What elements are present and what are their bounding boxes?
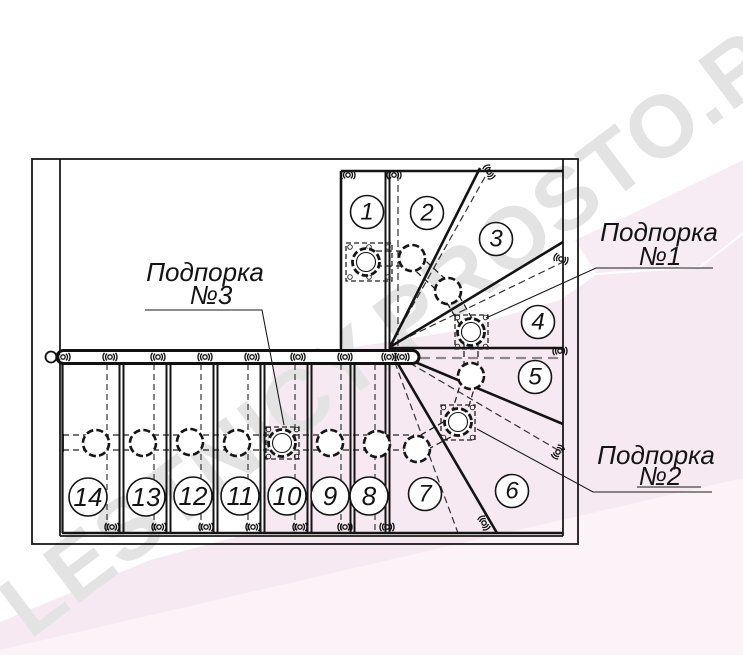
step-number-10: 10 xyxy=(273,481,302,511)
baluster-post xyxy=(458,363,484,389)
bolt-hole xyxy=(348,275,353,280)
support-2-number: №2 xyxy=(639,461,682,491)
baluster-post xyxy=(177,429,203,455)
bolt-hole xyxy=(348,245,353,250)
baluster-post xyxy=(130,430,156,456)
baluster-post xyxy=(435,278,461,304)
step-number-12: 12 xyxy=(179,481,208,511)
baluster-post xyxy=(404,436,430,462)
step-number-1: 1 xyxy=(360,199,373,226)
step-number-6: 6 xyxy=(505,478,519,505)
support-3-number: №3 xyxy=(190,280,233,310)
handrail-bar xyxy=(57,351,419,364)
step-number-9: 9 xyxy=(323,481,337,511)
handrail-end-newel xyxy=(46,352,57,363)
baluster-post xyxy=(83,430,109,456)
step-number-5: 5 xyxy=(528,364,542,391)
baluster-post xyxy=(364,431,390,457)
step-number-14: 14 xyxy=(74,482,103,512)
baluster-post xyxy=(317,430,343,456)
baluster-post xyxy=(399,245,425,271)
handrail-capsule xyxy=(46,351,420,364)
support-1-number: №1 xyxy=(639,241,682,271)
baluster-post xyxy=(224,430,250,456)
step-number-8: 8 xyxy=(362,481,377,511)
step-number-7: 7 xyxy=(418,481,433,508)
step-number-4: 4 xyxy=(531,309,544,336)
stair-plan-drawing: LESTNICY.PROSTO.RU 1234567891011121314 П… xyxy=(0,0,743,655)
stair-plan-page: LESTNICY.PROSTO.RU 1234567891011121314 П… xyxy=(0,0,743,655)
step-number-2: 2 xyxy=(419,200,433,227)
step-number-11: 11 xyxy=(227,481,254,511)
step-number-13: 13 xyxy=(132,482,161,512)
step-number-3: 3 xyxy=(489,226,503,253)
